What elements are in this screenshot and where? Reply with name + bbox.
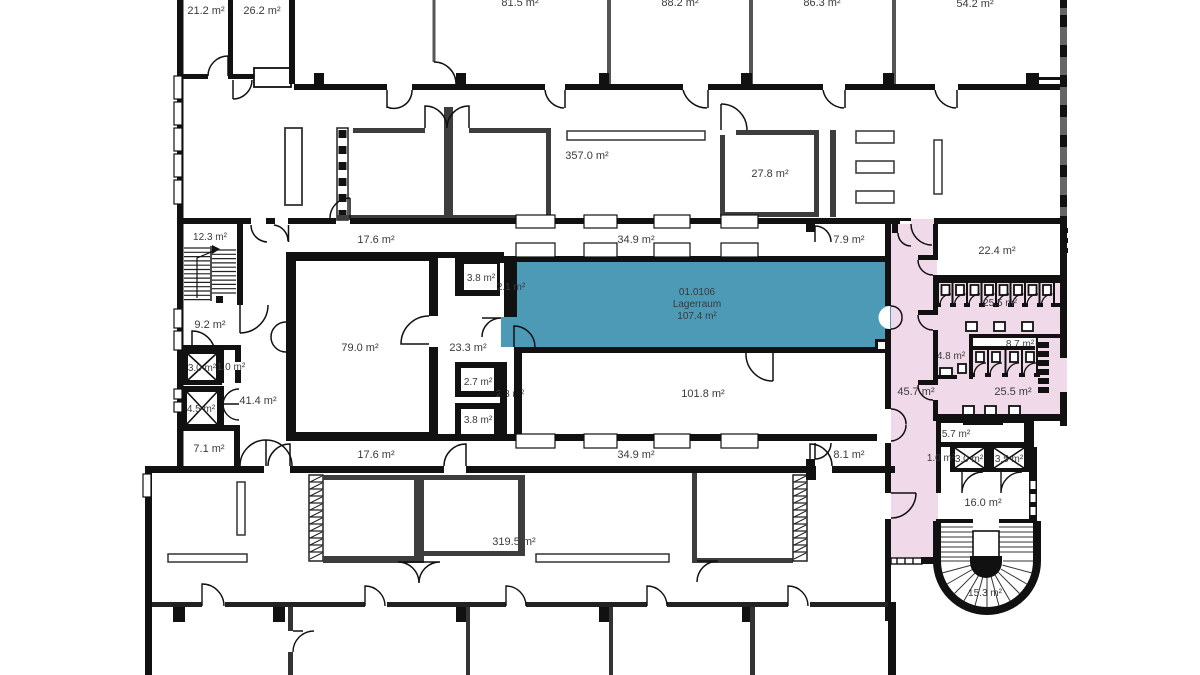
svg-text:2.1 m²: 2.1 m² [497,282,526,293]
svg-text:81.5 m²: 81.5 m² [501,0,539,9]
svg-text:3.5 m²: 3.5 m² [995,454,1024,465]
svg-text:15.3 m²: 15.3 m² [968,588,1003,599]
svg-text:1.0 m²: 1.0 m² [927,453,956,464]
svg-text:21.2 m²: 21.2 m² [187,5,225,17]
svg-text:3.0 m²: 3.0 m² [955,454,984,465]
svg-text:357.0 m²: 357.0 m² [565,150,609,162]
svg-text:25.5 m²: 25.5 m² [983,298,1018,309]
svg-text:86.3 m²: 86.3 m² [803,0,841,9]
svg-text:3.8 m²: 3.8 m² [464,415,493,426]
svg-text:26.2 m²: 26.2 m² [243,5,281,17]
svg-text:25.5 m²: 25.5 m² [994,386,1032,398]
svg-text:17.6 m²: 17.6 m² [357,449,395,461]
svg-text:5.7 m²: 5.7 m² [942,429,971,440]
svg-text:54.2 m²: 54.2 m² [956,0,994,10]
svg-text:3.8 m²: 3.8 m² [467,273,496,284]
svg-text:4.5 m²: 4.5 m² [187,404,216,415]
svg-text:45.7 m²: 45.7 m² [897,386,935,398]
svg-text:9.2 m²: 9.2 m² [194,319,226,331]
svg-text:23.3 m²: 23.3 m² [449,342,487,354]
svg-text:27.8 m²: 27.8 m² [751,168,789,180]
svg-text:101.8 m²: 101.8 m² [681,388,725,400]
svg-text:16.0 m²: 16.0 m² [964,497,1002,509]
svg-text:4.8 m²: 4.8 m² [937,351,966,362]
svg-text:01.0106: 01.0106 [679,287,716,298]
svg-text:8.1 m²: 8.1 m² [833,449,865,461]
svg-text:7.1 m²: 7.1 m² [193,443,225,455]
svg-text:Lagerraum: Lagerraum [673,299,721,310]
svg-text:3.0 m²: 3.0 m² [188,363,217,374]
svg-text:88.2 m²: 88.2 m² [661,0,699,9]
svg-text:79.0 m²: 79.0 m² [341,342,379,354]
svg-text:17.6 m²: 17.6 m² [357,234,395,246]
svg-text:319.5 m²: 319.5 m² [492,536,536,548]
svg-text:107.4 m²: 107.4 m² [677,311,717,322]
svg-text:7.9 m²: 7.9 m² [833,234,865,246]
svg-text:41.4 m²: 41.4 m² [239,395,277,407]
svg-text:34.9 m²: 34.9 m² [617,449,655,461]
svg-text:1.0 m²: 1.0 m² [217,362,246,373]
svg-text:34.9 m²: 34.9 m² [617,234,655,246]
svg-text:22.4 m²: 22.4 m² [978,245,1016,257]
svg-text:2.7 m²: 2.7 m² [464,377,493,388]
svg-text:12.3 m²: 12.3 m² [193,232,228,243]
